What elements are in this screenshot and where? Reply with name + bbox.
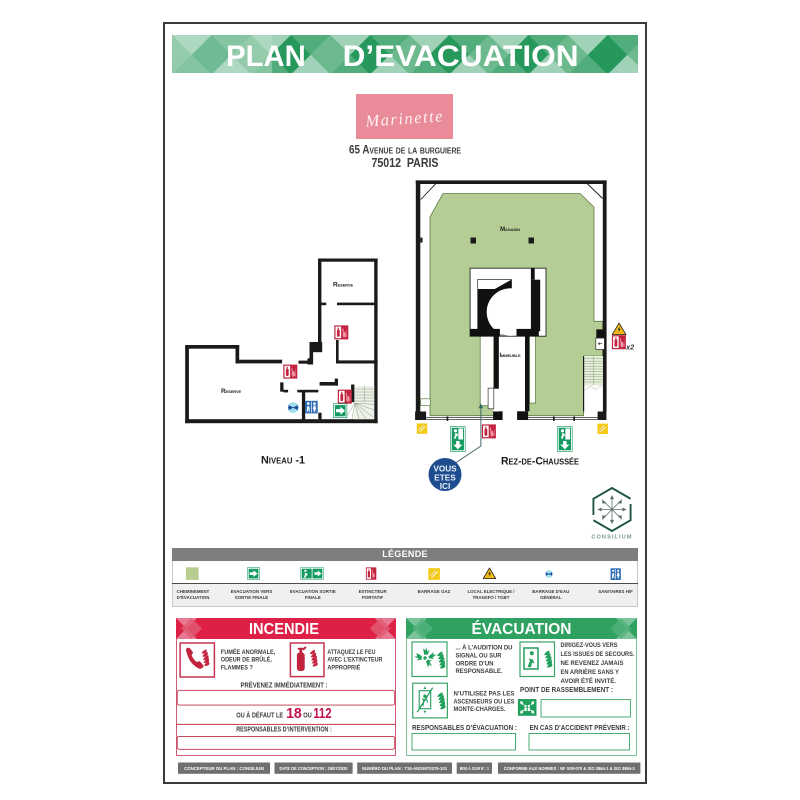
svg-text:RESPONSABLE.: RESPONSABLE. <box>456 668 503 675</box>
svg-text:Marinette: Marinette <box>364 106 445 131</box>
svg-text:ASCENSEURS OU LES: ASCENSEURS OU LES <box>454 698 515 705</box>
svg-text:CONFORME AUX NORMES : NF X08-0: CONFORME AUX NORMES : NF X08-070 & ISO 3… <box>504 766 635 772</box>
svg-text:OU: OU <box>303 710 312 719</box>
svg-text:EN CAS D’ACCIDENT PRÉVENIR :: EN CAS D’ACCIDENT PRÉVENIR : <box>530 723 630 732</box>
svg-text:FUMÉE ANORMALE,: FUMÉE ANORMALE, <box>221 647 276 656</box>
svg-text:NE REVENEZ JAMAIS: NE REVENEZ JAMAIS <box>560 660 623 667</box>
svg-text:CONSILIUM: CONSILIUM <box>591 535 632 541</box>
svg-text:ICI: ICI <box>440 482 450 491</box>
svg-text:... À L’AUDITION DU: ... À L’AUDITION DU <box>456 642 513 651</box>
svg-text:MONTE-CHARGES.: MONTE-CHARGES. <box>454 706 506 713</box>
svg-text:x2: x2 <box>625 344 634 351</box>
svg-text:SIGNAL OU SUR: SIGNAL OU SUR <box>456 652 502 659</box>
svg-text:FLAMMES ?: FLAMMES ? <box>221 665 253 672</box>
svg-text:INCENDIE: INCENDIE <box>249 621 319 638</box>
svg-text:112: 112 <box>313 706 331 722</box>
svg-text:PLAN: PLAN <box>226 40 306 73</box>
svg-text:Magasin: Magasin <box>500 227 520 233</box>
svg-text:DATE DE CONCEPTION : 29/07/202: DATE DE CONCEPTION : 29/07/2020 <box>280 766 348 772</box>
svg-text:Reserve: Reserve <box>221 388 242 395</box>
svg-text:ORDRE D’UN: ORDRE D’UN <box>456 660 494 667</box>
svg-text:EN ARRIÈRE SANS Y: EN ARRIÈRE SANS Y <box>560 667 619 676</box>
svg-text:ÉVACUATION: ÉVACUATION <box>472 619 572 638</box>
svg-text:ODEUR DE BRÛLÉ,: ODEUR DE BRÛLÉ, <box>221 655 272 664</box>
svg-text:PRÉVENEZ IMMÉDIATEMENT :: PRÉVENEZ IMMÉDIATEMENT : <box>240 680 327 689</box>
svg-text:OU À DÉFAUT LE: OU À DÉFAUT LE <box>236 710 283 719</box>
svg-text:75012 PARIS: 75012 PARIS <box>372 155 439 170</box>
svg-text:LES ISSUES DE SECOURS.: LES ISSUES DE SECOURS. <box>560 651 634 658</box>
svg-text:APPROPRIÉ: APPROPRIÉ <box>327 663 360 672</box>
svg-text:POINT DE RASSEMBLEMENT :: POINT DE RASSEMBLEMENT : <box>520 685 613 694</box>
svg-text:MISE À JOUR N° : 1: MISE À JOUR N° : 1 <box>460 765 489 772</box>
svg-text:D’EVACUATION: D’EVACUATION <box>343 40 579 73</box>
svg-text:Niveau -1: Niveau -1 <box>261 455 305 467</box>
svg-text:CONCEPTEUR DU PLAN : CONSILIUM: CONCEPTEUR DU PLAN : CONSILIUM <box>184 766 264 772</box>
svg-text:Reserve: Reserve <box>333 282 354 289</box>
svg-text:Immeuble: Immeuble <box>499 353 521 359</box>
svg-text:RESPONSABLES D’ÉVACUATION :: RESPONSABLES D’ÉVACUATION : <box>412 723 517 732</box>
svg-text:RESPONSABLES D’INTERVENTION :: RESPONSABLES D’INTERVENTION : <box>236 724 332 733</box>
svg-text:N’UTILISEZ PAS LES: N’UTILISEZ PAS LES <box>454 691 515 698</box>
svg-text:ATTAQUEZ LE FEU: ATTAQUEZ LE FEU <box>327 649 375 656</box>
svg-text:AVEC L’EXTINCTEUR: AVEC L’EXTINCTEUR <box>327 657 382 664</box>
svg-text:ETES: ETES <box>434 473 456 482</box>
svg-text:DIRIGEZ-VOUS VERS: DIRIGEZ-VOUS VERS <box>560 642 617 649</box>
svg-text:18: 18 <box>286 706 302 722</box>
svg-text:Rez-de-Chaussée: Rez-de-Chaussée <box>501 456 580 468</box>
